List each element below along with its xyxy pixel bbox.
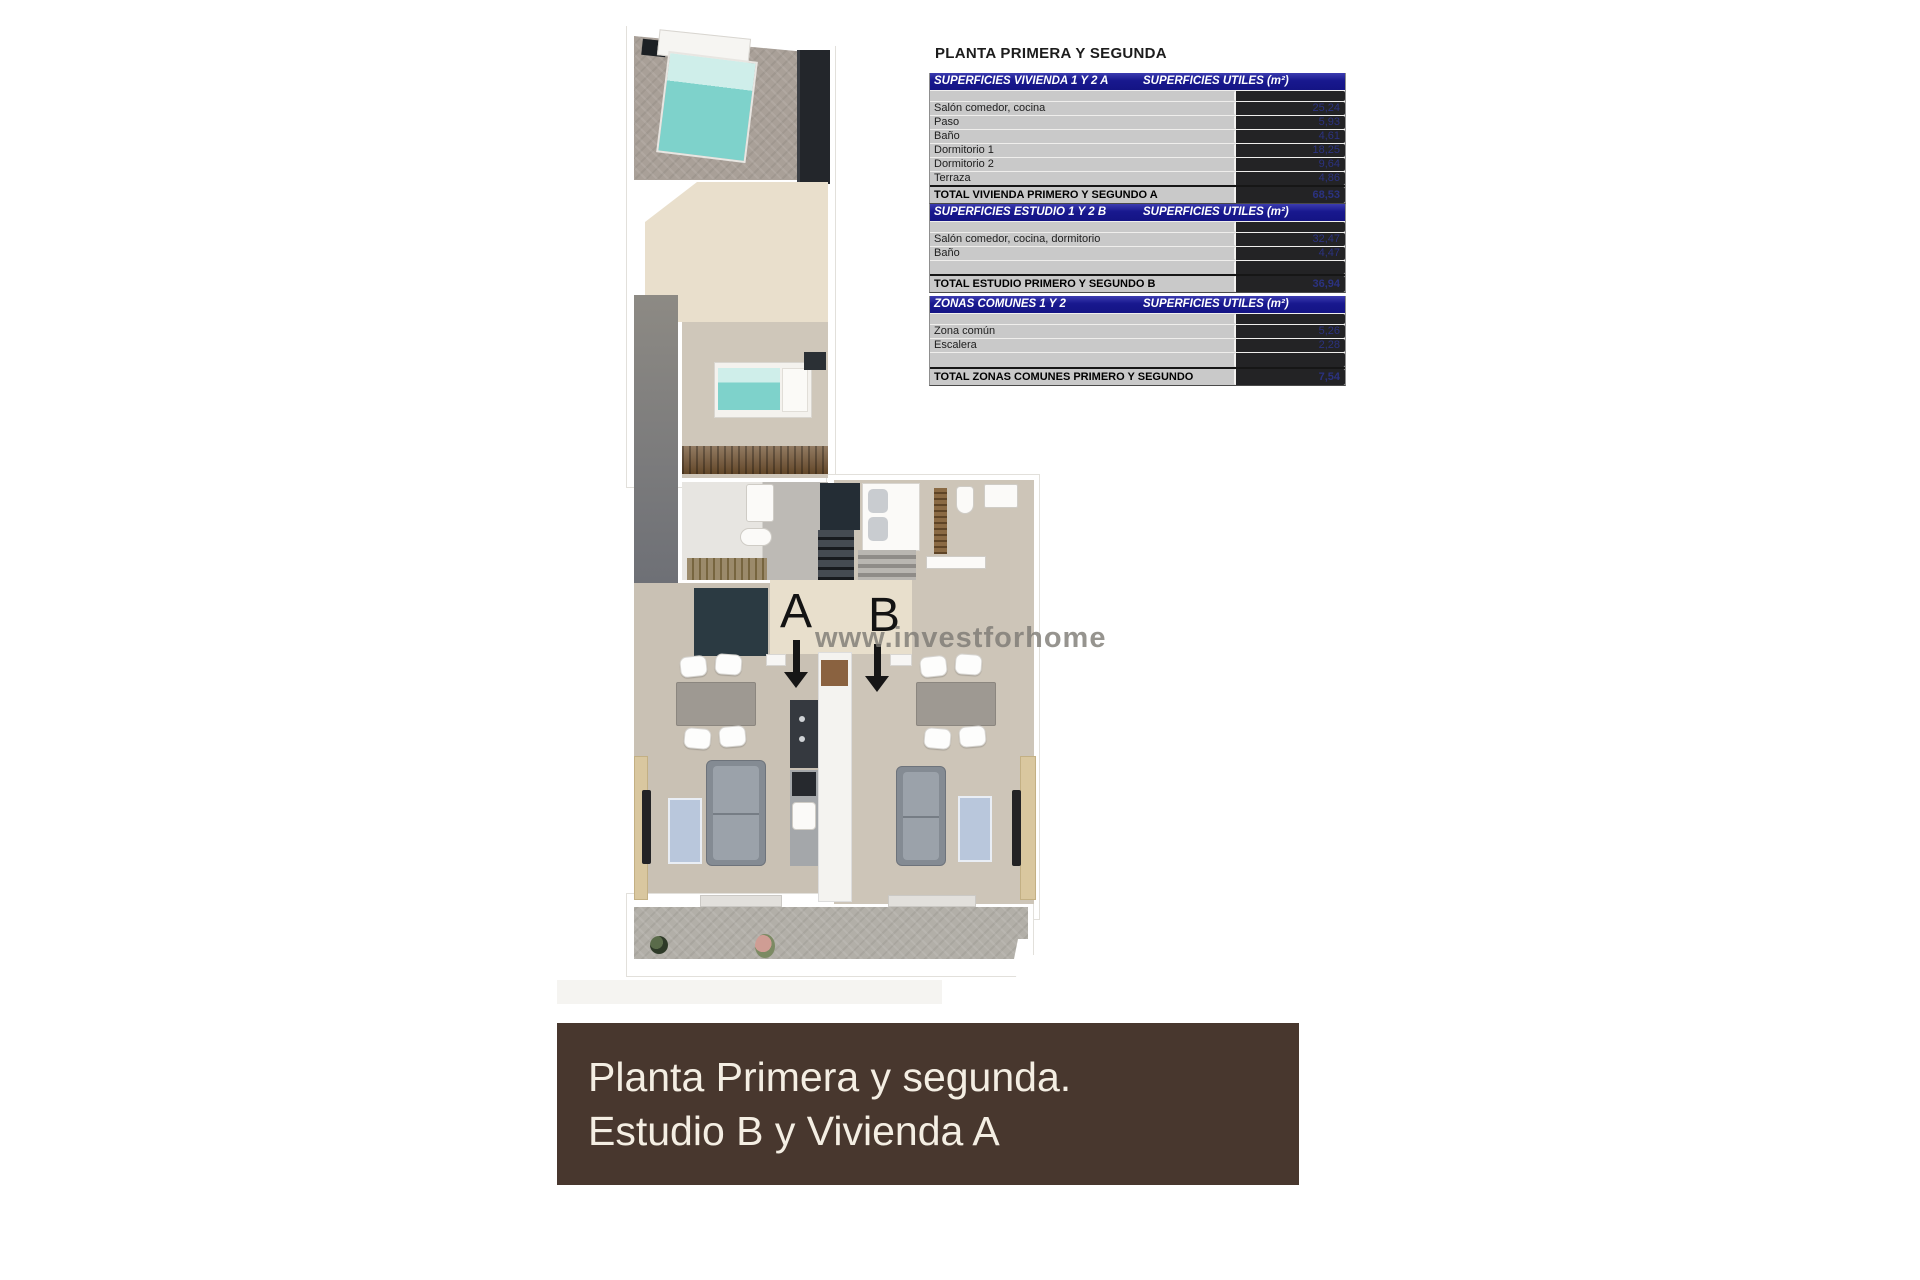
chair: [954, 653, 982, 676]
total-label: TOTAL ZONAS COMUNES PRIMERO Y SEGUNDO: [930, 369, 1234, 385]
sideboard-b: [1020, 756, 1036, 900]
row-label: Terraza: [930, 172, 1234, 185]
table-row-empty: [930, 352, 1345, 367]
island-burner-1: [799, 716, 805, 722]
table-header-right: SUPERFICIES UTILES (m²): [1143, 73, 1289, 90]
sink-a: [746, 484, 774, 522]
sofa-b: [896, 766, 946, 866]
row-label: [930, 261, 1234, 274]
table-row: Baño 4,47: [930, 246, 1345, 260]
table-header-right: SUPERFICIES UTILES (m²): [1143, 204, 1289, 221]
chair: [679, 655, 708, 679]
stairs-lower-flight: [858, 550, 916, 580]
banner-line-1: Planta Primera y segunda.: [588, 1050, 1299, 1104]
row-value: [1234, 353, 1345, 367]
bed2-mattress: [718, 368, 780, 410]
wardrobe-dark: [797, 50, 830, 184]
rug-b: [958, 796, 992, 862]
sink-b: [984, 484, 1018, 508]
table-header: SUPERFICIES VIVIENDA 1 Y 2 A SUPERFICIES…: [930, 73, 1345, 90]
row-value: 5,93: [1234, 116, 1345, 129]
table-row-empty: [930, 90, 1345, 101]
radiator-wood: [934, 488, 947, 554]
table-header-left: SUPERFICIES ESTUDIO 1 Y 2 B: [934, 204, 1106, 221]
row-label: Baño: [930, 130, 1234, 143]
table-total-row: TOTAL VIVIENDA PRIMERO Y SEGUNDO A 68,53: [930, 185, 1345, 203]
oven: [792, 802, 816, 830]
toilet-a: [740, 528, 772, 546]
sofa-a: [706, 760, 766, 866]
console-table-b: [926, 556, 986, 569]
total-value: 68,53: [1234, 187, 1345, 203]
row-value: 25,24: [1234, 102, 1345, 115]
chair: [923, 727, 952, 750]
table-row-empty: [930, 313, 1345, 324]
dining-table-a: [676, 682, 756, 726]
kitchen-island: [790, 700, 818, 768]
terrace-floor: [634, 907, 1028, 959]
unit-a-arrow-icon: [793, 640, 800, 672]
row-label: Baño: [930, 247, 1234, 260]
table-row: Terraza 4,86: [930, 171, 1345, 185]
table-header-left: ZONAS COMUNES 1 Y 2: [934, 296, 1066, 313]
wall-stub-b: [890, 654, 912, 666]
row-value: [1234, 261, 1345, 274]
row-label: Paso: [930, 116, 1234, 129]
watermark: www.investforhome: [815, 622, 1106, 655]
sofa-seam: [903, 816, 939, 818]
chair: [958, 725, 987, 748]
sofabed-cushion-2: [868, 517, 888, 541]
chair: [714, 653, 742, 676]
row-value: 2,28: [1234, 339, 1345, 352]
table-header-right: SUPERFICIES UTILES (m²): [1143, 296, 1289, 313]
row-label: [930, 222, 1234, 232]
row-value: 4,86: [1234, 172, 1345, 185]
wardrobe-wood: [682, 446, 828, 474]
table-total-row: TOTAL ZONAS COMUNES PRIMERO Y SEGUNDO 7,…: [930, 367, 1345, 385]
table-row: Escalera 2,28: [930, 338, 1345, 352]
door-threshold-b: [888, 895, 976, 907]
row-value: 32,47: [1234, 233, 1345, 246]
tv-a: [642, 790, 651, 864]
sofa-seam: [713, 813, 759, 815]
row-value: [1234, 222, 1345, 232]
row-label: Dormitorio 1: [930, 144, 1234, 157]
kitchen-column: [818, 652, 852, 902]
chair: [919, 655, 948, 679]
row-label: [930, 91, 1234, 101]
table-row: Salón comedor, cocina, dormitorio 32,47: [930, 232, 1345, 246]
table-total-row: TOTAL ESTUDIO PRIMERO Y SEGUNDO B 36,94: [930, 274, 1345, 292]
gallery-strip: [634, 295, 678, 583]
rug-a: [668, 798, 702, 864]
sofabed-cushion-1: [868, 489, 888, 513]
table-vivienda-a: SUPERFICIES VIVIENDA 1 Y 2 A SUPERFICIES…: [929, 73, 1346, 204]
door-threshold-a: [700, 895, 782, 907]
toilet-b: [956, 486, 974, 514]
table-estudio-b: SUPERFICIES ESTUDIO 1 Y 2 B SUPERFICIES …: [929, 204, 1346, 293]
row-value: [1234, 314, 1345, 324]
row-label: [930, 353, 1234, 367]
table-header: SUPERFICIES ESTUDIO 1 Y 2 B SUPERFICIES …: [930, 204, 1345, 221]
table-row-empty: [930, 221, 1345, 232]
kitchen-wood-box: [821, 660, 848, 686]
table-row: Dormitorio 2 9,64: [930, 157, 1345, 171]
total-value: 7,54: [1234, 369, 1345, 385]
table-row: Dormitorio 1 18,25: [930, 143, 1345, 157]
row-value: 4,47: [1234, 247, 1345, 260]
unit-a-label: A: [780, 588, 812, 636]
total-label: TOTAL ESTUDIO PRIMERO Y SEGUNDO B: [930, 276, 1234, 292]
row-label: Zona común: [930, 325, 1234, 338]
row-label: [930, 314, 1234, 324]
island-burner-2: [799, 736, 805, 742]
plant-flower: [755, 934, 775, 958]
stairs: [818, 530, 854, 586]
row-label: Salón comedor, cocina, dormitorio: [930, 233, 1234, 246]
wall-stub-a: [766, 654, 786, 666]
plant-green: [650, 936, 668, 954]
row-value: 9,64: [1234, 158, 1345, 171]
dark-teal-square: [694, 588, 768, 656]
row-label: Dormitorio 2: [930, 158, 1234, 171]
chair: [718, 725, 747, 748]
table-row: Paso 5,93: [930, 115, 1345, 129]
table-row: Baño 4,61: [930, 129, 1345, 143]
row-value: 5,26: [1234, 325, 1345, 338]
bench-wood: [687, 558, 767, 580]
page-title: PLANTA PRIMERA Y SEGUNDA: [935, 45, 1167, 62]
bed2-pillow: [782, 368, 808, 412]
tv-b: [1012, 790, 1021, 866]
row-label: Escalera: [930, 339, 1234, 352]
total-value: 36,94: [1234, 276, 1345, 292]
photo-edge-shadow: [557, 980, 942, 1004]
row-value: [1234, 91, 1345, 101]
caption-banner: Planta Primera y segunda. Estudio B y Vi…: [557, 1023, 1299, 1185]
row-value: 4,61: [1234, 130, 1345, 143]
chair: [683, 727, 712, 750]
table-header: ZONAS COMUNES 1 Y 2 SUPERFICIES UTILES (…: [930, 296, 1345, 313]
banner-line-2: Estudio B y Vivienda A: [588, 1104, 1299, 1158]
row-label: Salón comedor, cocina: [930, 102, 1234, 115]
table-row: Salón comedor, cocina 25,24: [930, 101, 1345, 115]
closet-dark-b: [820, 483, 860, 530]
table-row: Zona común 5,26: [930, 324, 1345, 338]
table-row-empty: [930, 260, 1345, 274]
dining-table-b: [916, 682, 996, 726]
table-zonas-comunes: ZONAS COMUNES 1 Y 2 SUPERFICIES UTILES (…: [929, 296, 1346, 386]
bed2-headboard: [804, 352, 826, 370]
total-label: TOTAL VIVIENDA PRIMERO Y SEGUNDO A: [930, 187, 1234, 203]
cooktop-dark: [792, 772, 816, 796]
row-value: 18,25: [1234, 144, 1345, 157]
bed1-mattress: [656, 51, 758, 163]
table-header-left: SUPERFICIES VIVIENDA 1 Y 2 A: [934, 73, 1108, 90]
